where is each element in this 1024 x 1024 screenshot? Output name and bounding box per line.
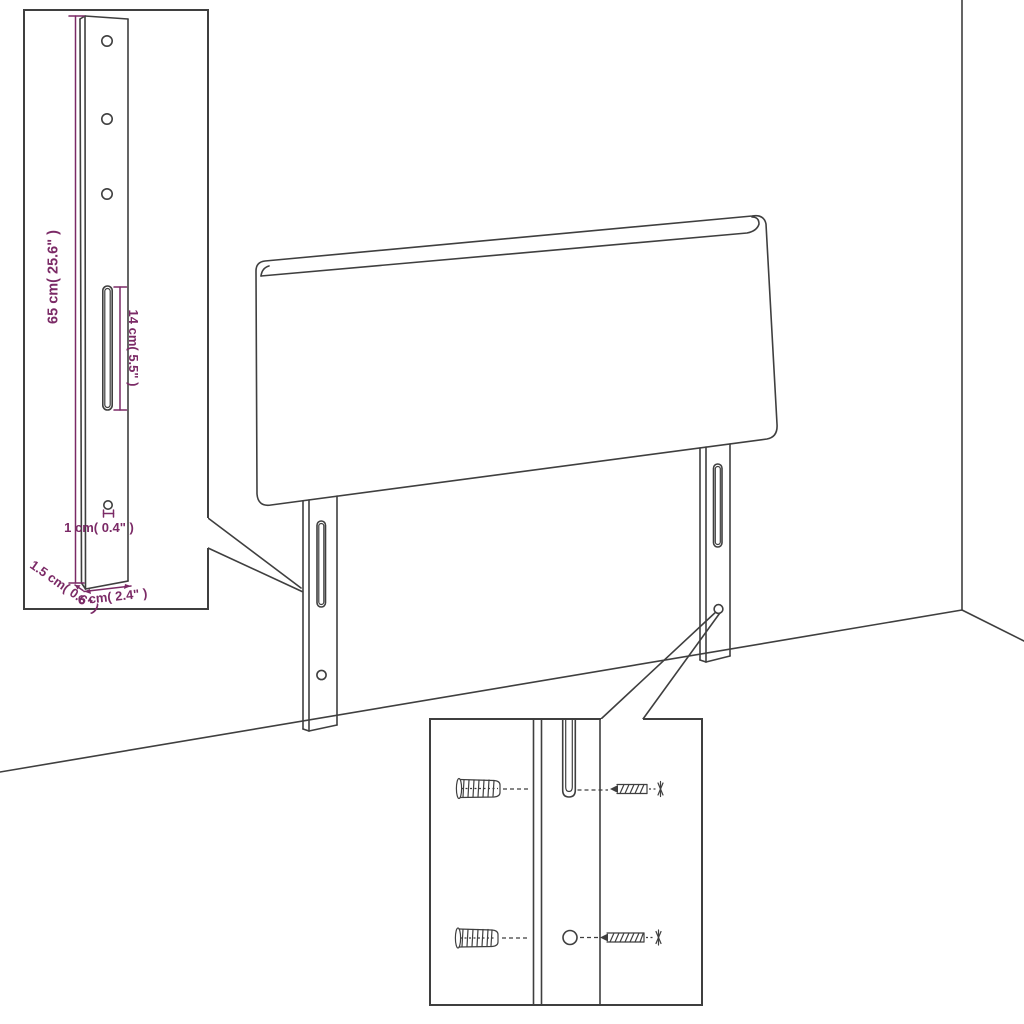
leg-detail-inset: 65 cm( 25.6" ) 14 cm( 5.5" ) 1 cm( 0.4" … bbox=[24, 10, 208, 616]
left-leg-slot-inner bbox=[319, 524, 324, 605]
right-leg-slot-inner bbox=[715, 467, 720, 545]
left-leg-hole bbox=[317, 670, 326, 679]
dimension-height-label: 65 cm( 25.6" ) bbox=[46, 230, 62, 324]
left-leg-foot-front bbox=[309, 725, 337, 731]
mounting-detail-callout bbox=[601, 613, 720, 720]
dimension-slot-label: 14 cm( 5.5" ) bbox=[126, 310, 141, 387]
leg-detail-callout bbox=[208, 518, 302, 592]
callout-line-right bbox=[643, 614, 720, 720]
callout-line-upper bbox=[208, 518, 301, 588]
headboard-panel bbox=[256, 216, 777, 506]
leg-front-left-edge bbox=[85, 16, 86, 589]
dimension-hole-label: 1 cm( 0.4" ) bbox=[64, 520, 134, 535]
panel-outline bbox=[256, 216, 777, 506]
right-leg-foot-side bbox=[700, 660, 706, 662]
headboard-assembly-diagram: 65 cm( 25.6" ) 14 cm( 5.5" ) 1 cm( 0.4" … bbox=[0, 0, 1024, 1024]
headboard-left-leg bbox=[303, 496, 337, 731]
headboard-right-leg bbox=[700, 444, 730, 662]
panel-top-edge-inner bbox=[261, 217, 759, 276]
left-leg-foot-side bbox=[303, 729, 309, 731]
panel-top-edge-left-curl bbox=[261, 266, 269, 276]
floor-line-right bbox=[962, 610, 1024, 641]
diagram-canvas: 65 cm( 25.6" ) 14 cm( 5.5" ) 1 cm( 0.4" … bbox=[0, 0, 1024, 1024]
callout-line-left bbox=[601, 613, 715, 720]
callout-line-lower bbox=[208, 548, 302, 592]
right-leg-foot-front bbox=[706, 656, 730, 662]
mounting-detail-inset bbox=[430, 719, 702, 1005]
